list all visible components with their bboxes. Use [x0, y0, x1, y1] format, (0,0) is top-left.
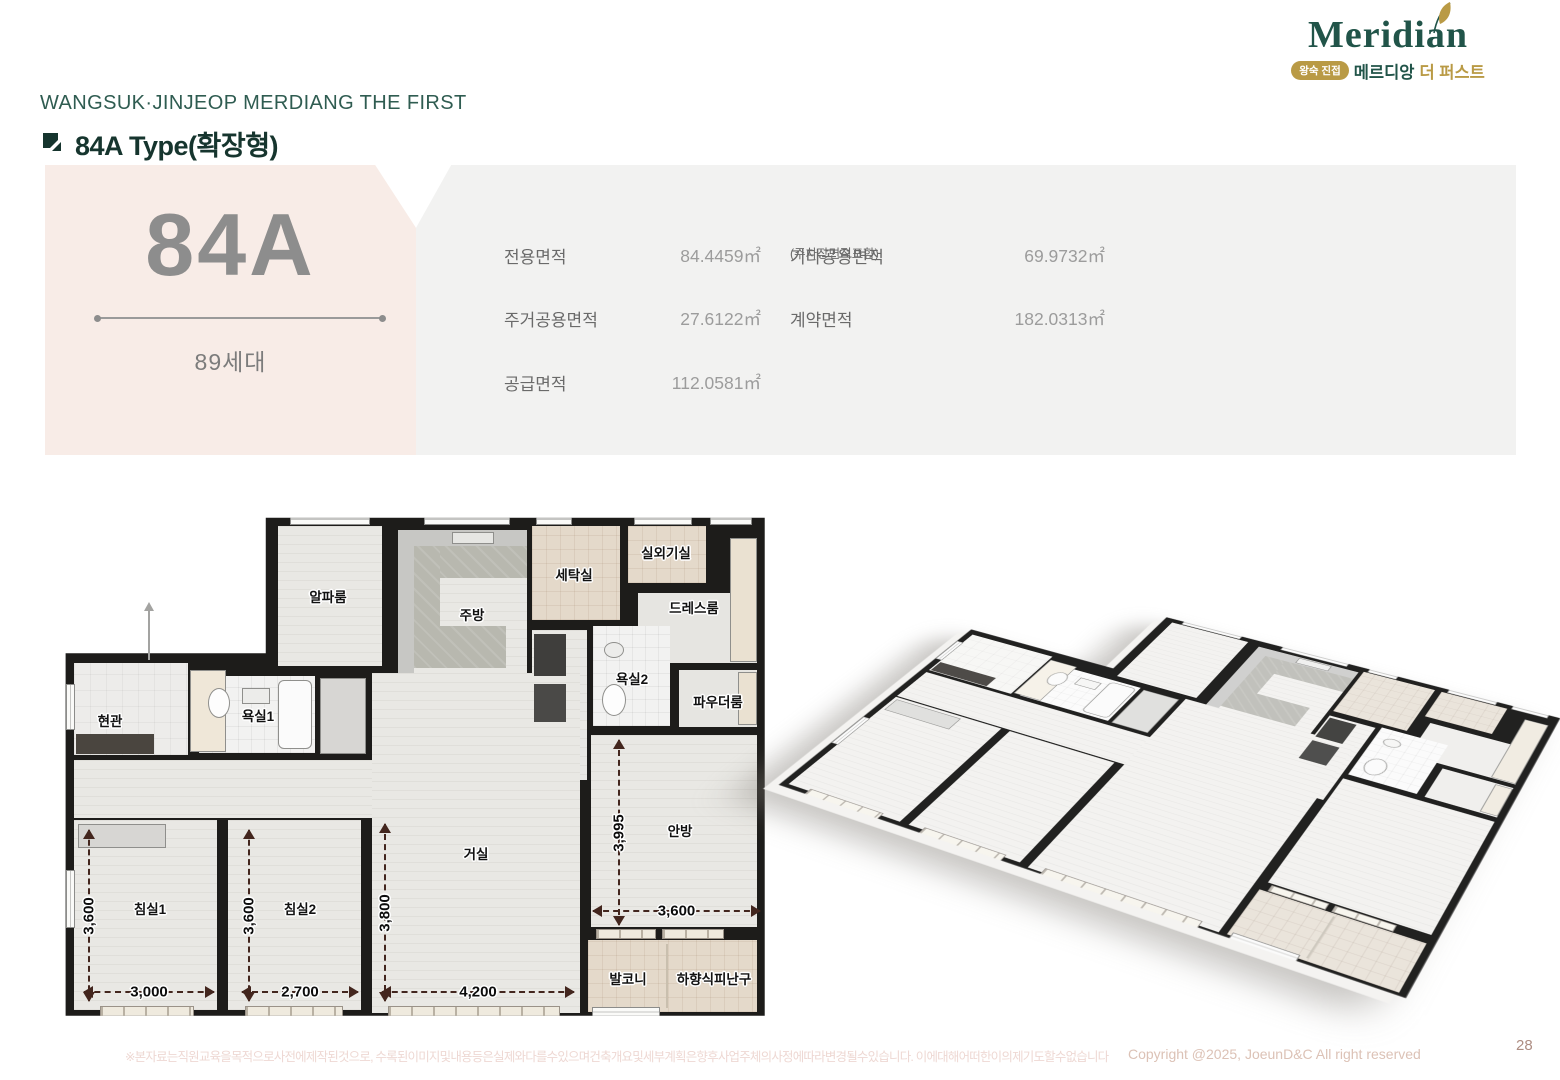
- floorplan-2d: 알파룸주방세탁실실외기실드레스룸욕실2파우더룸현관욕실1거실안방침실1침실2발코…: [62, 508, 782, 1023]
- area-value: 182.0313㎡: [931, 306, 1105, 331]
- dimension: 3,995: [618, 740, 620, 925]
- plan-walls: [772, 578, 1560, 1009]
- project-title: WANGSUK·JINJEOP MERDIANG THE FIRST: [40, 92, 467, 115]
- window: [66, 870, 75, 928]
- window: [424, 513, 510, 525]
- brand-logo-subline: 왕숙 진접 메르디앙 더 퍼스트: [1278, 59, 1498, 83]
- household-count: 89세대: [45, 343, 416, 377]
- dress-room-label: 드레스룸: [669, 597, 719, 617]
- brand-logo: Meridian 왕숙 진접 메르디앙 더 퍼스트: [1278, 16, 1498, 83]
- area-value: 112.0581㎡: [591, 370, 761, 395]
- fixture: [730, 538, 757, 662]
- brand-korean-suffix: 더 퍼스트: [1419, 59, 1484, 83]
- railing-window: [388, 1006, 560, 1017]
- railing-window: [662, 929, 724, 939]
- entry-direction-arrow: [148, 604, 150, 660]
- window: [290, 513, 370, 525]
- dimension-label: 3,600: [81, 897, 98, 935]
- unit-type-title: 84A Type(확장형): [75, 124, 278, 163]
- area-row: 주거공용면적 27.6122㎡ 계약면적 182.0313㎡: [416, 306, 1516, 330]
- escape-hatch-label: 하향식피난구: [677, 968, 752, 988]
- dimension-label: 3,800: [377, 894, 394, 932]
- railing-window: [596, 929, 656, 939]
- dimension: 3,600: [248, 830, 250, 1001]
- bathroom1-label: 욕실1: [242, 705, 274, 725]
- corner-square-icon: [42, 132, 66, 156]
- divider-line: [97, 317, 383, 319]
- dimension-label: 3,600: [658, 903, 696, 920]
- fixture: [414, 626, 506, 668]
- dimension: 3,600: [88, 830, 90, 1001]
- brand-logo-wordmark: Meridian: [1308, 16, 1468, 56]
- area-value: 84.4459㎡: [591, 243, 761, 268]
- type-code: 84A: [45, 201, 416, 289]
- bedroom1-label: 침실1: [134, 898, 166, 918]
- dimension-label: 3,995: [611, 814, 628, 852]
- laundry-label: 세탁실: [555, 564, 592, 584]
- railing-window: [245, 1006, 343, 1017]
- fixture: [602, 684, 626, 716]
- dimension: 2,700: [242, 991, 358, 993]
- fixture: [320, 678, 366, 754]
- area-row: 공급면적 112.0581㎡: [416, 370, 1516, 394]
- disclaimer-text: ※본자료는직원교육을목적으로사전에제작된것으로, 수록된이미지및내용등은실제와다…: [125, 1046, 1108, 1065]
- kitchen-label: 주방: [460, 604, 485, 624]
- floorplan-3d: [800, 468, 1560, 1068]
- living-room-label: 거실: [464, 843, 489, 863]
- window: [1511, 704, 1550, 719]
- entrance-label: 현관: [98, 710, 123, 730]
- leaf-icon: [1424, 0, 1454, 34]
- type-summary-box: 84A 89세대: [45, 165, 416, 455]
- fixture: [242, 688, 270, 704]
- dimension: 3,800: [384, 824, 386, 1001]
- fixture: [278, 680, 312, 749]
- page: Meridian 왕숙 진접 메르디앙 더 퍼스트 WANGSUK·JINJEO…: [0, 0, 1560, 1080]
- bathroom2-label: 욕실2: [616, 668, 648, 688]
- fixture: [452, 532, 494, 544]
- fixture: [604, 642, 624, 658]
- window: [634, 513, 692, 525]
- window: [66, 684, 75, 730]
- window: [592, 1007, 660, 1017]
- page-number: 28: [1516, 1037, 1533, 1054]
- area-value: 27.6122㎡: [591, 306, 761, 331]
- dimension-label: 3,600: [241, 897, 258, 935]
- unit-type-heading: 84A Type(확장형): [42, 124, 278, 163]
- dimension-label: 3,000: [130, 984, 168, 1001]
- area-value: 69.9732㎡: [931, 243, 1105, 268]
- dimension: 4,200: [382, 991, 574, 993]
- dimension-label: 2,700: [281, 984, 319, 1001]
- window: [710, 513, 752, 525]
- outdoor-unit-label: 실외기실: [641, 542, 691, 562]
- plan-walls: 알파룸주방세탁실실외기실드레스룸욕실2파우더룸현관욕실1거실안방침실1침실2발코…: [62, 508, 782, 1023]
- floorplan-3d-rotated: [772, 578, 1560, 1009]
- brand-korean-name: 메르디앙: [1354, 59, 1415, 83]
- master-bedroom-label: 안방: [668, 820, 693, 840]
- area-row: 전용면적 84.4459㎡ 기타공용면적(주차장면적포함) 69.9732㎡: [416, 243, 1516, 267]
- fixture: [534, 634, 566, 676]
- dimension: 3,600: [593, 910, 760, 912]
- fixture: [666, 944, 668, 1008]
- dimension: 3,000: [84, 991, 214, 993]
- balcony-label: 발코니: [609, 968, 646, 988]
- powder-room-label: 파우더룸: [693, 691, 743, 711]
- dimension-label: 4,200: [459, 984, 497, 1001]
- brand-badge: 왕숙 진접: [1291, 61, 1349, 80]
- railing-window: [100, 1006, 194, 1017]
- copyright-text: Copyright @2025, JoeunD&C All right rese…: [1128, 1046, 1421, 1062]
- area-table: 전용면적 84.4459㎡ 기타공용면적(주차장면적포함) 69.9732㎡ 주…: [416, 165, 1516, 455]
- fixture: [534, 684, 566, 722]
- alpha-room-label: 알파룸: [309, 586, 346, 606]
- fixture: [398, 546, 414, 673]
- fixture: [208, 688, 230, 718]
- bedroom2-label: 침실2: [284, 898, 316, 918]
- window: [536, 513, 572, 525]
- fixture: [76, 734, 154, 754]
